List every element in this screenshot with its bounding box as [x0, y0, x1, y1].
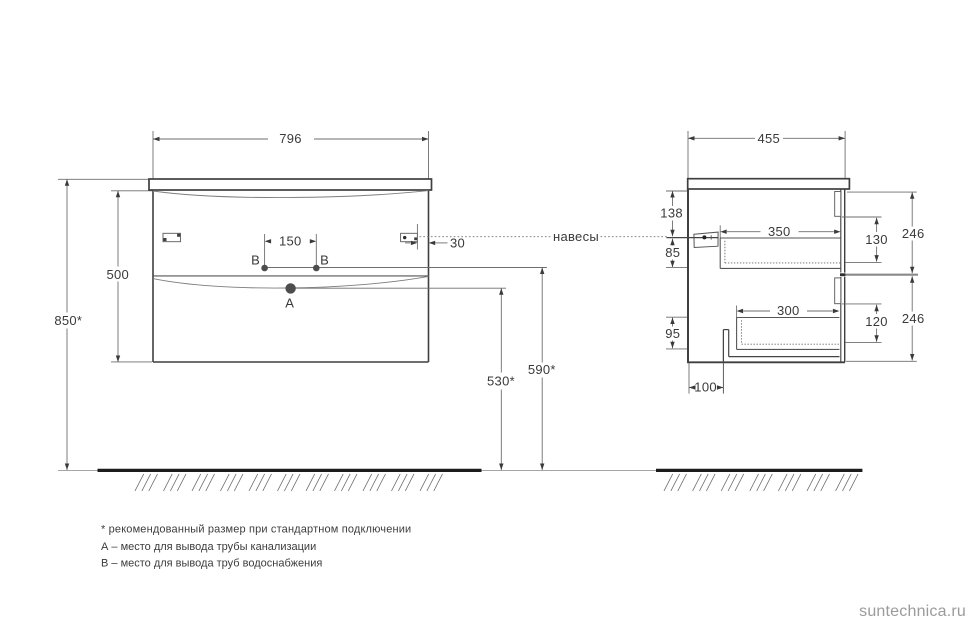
svg-text:500: 500 — [107, 267, 130, 282]
svg-text:навесы: навесы — [553, 229, 599, 244]
svg-text:30: 30 — [450, 235, 465, 250]
svg-text:А – место для вывода трубы кан: А – место для вывода трубы канализации — [101, 541, 316, 553]
svg-text:300: 300 — [777, 303, 800, 318]
svg-text:850*: 850* — [54, 313, 82, 328]
svg-text:130: 130 — [865, 232, 888, 247]
svg-text:suntechnica.ru: suntechnica.ru — [859, 603, 966, 620]
svg-text:246: 246 — [902, 311, 925, 326]
svg-text:B: B — [320, 253, 329, 268]
svg-text:150: 150 — [279, 234, 302, 249]
svg-text:85: 85 — [665, 245, 680, 260]
svg-text:100: 100 — [694, 380, 717, 395]
svg-text:796: 796 — [279, 131, 302, 146]
svg-text:B: B — [251, 253, 260, 268]
svg-text:455: 455 — [758, 131, 781, 146]
svg-text:120: 120 — [865, 314, 888, 329]
svg-text:246: 246 — [902, 226, 925, 241]
svg-text:350: 350 — [768, 224, 791, 239]
svg-text:* рекомендованный размер при с: * рекомендованный размер при стандартном… — [101, 523, 411, 535]
svg-text:590*: 590* — [528, 362, 556, 377]
svg-text:138: 138 — [660, 206, 683, 221]
svg-text:В – место для вывода труб водо: В – место для вывода труб водоснабжения — [101, 557, 322, 569]
svg-text:95: 95 — [665, 326, 680, 341]
svg-text:A: A — [285, 295, 294, 310]
svg-text:530*: 530* — [487, 374, 515, 389]
